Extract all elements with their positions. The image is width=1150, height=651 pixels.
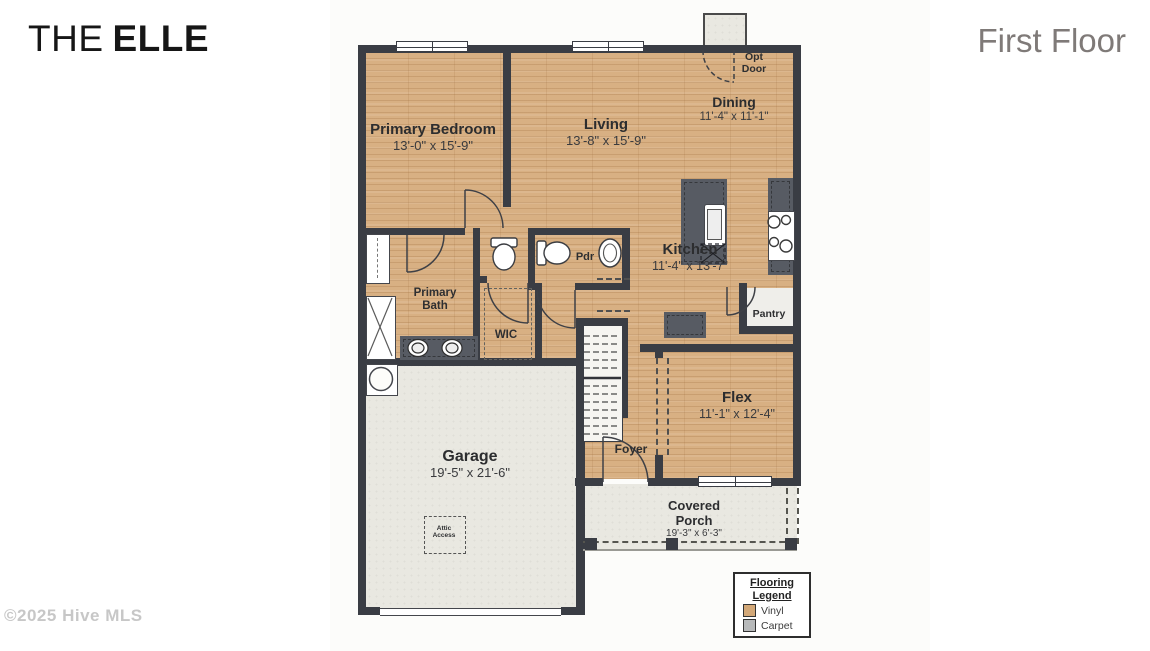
wall-front-c — [770, 478, 801, 486]
label-covered-porch: Covered Porch 19'-3" x 6'-3" — [652, 499, 736, 539]
kitchen-dims: 11'-4" x 13'-7" — [630, 259, 750, 273]
label-pdr: Pdr — [567, 251, 603, 263]
wall-hall-b — [407, 228, 465, 235]
kitchen-name: Kitchen — [630, 242, 750, 259]
plan-title-prefix: THE — [28, 18, 104, 59]
label-foyer: Foyer — [602, 443, 660, 456]
wall-flex-left-top — [655, 344, 663, 358]
porch-right-dashed-edge — [786, 488, 799, 544]
porch-post-left — [585, 538, 597, 550]
water-heater-pad — [366, 364, 398, 396]
wall-pantry-bottom — [739, 326, 801, 334]
kitchen-counter-stub — [664, 312, 706, 338]
label-attic-access: Attic Access — [426, 525, 462, 540]
island-sink-basin — [707, 209, 722, 240]
wic-carpet-outline — [484, 288, 532, 360]
legend-row-carpet: Carpet — [743, 619, 809, 632]
copyright-text: ©2025 Hive MLS — [4, 606, 143, 626]
porch-post-right — [785, 538, 797, 550]
legend-row-vinyl: Vinyl — [743, 604, 809, 617]
porch-bottom-dashed-edge — [583, 541, 795, 543]
label-primary-bath: Primary Bath — [407, 287, 463, 313]
bath-vanity — [400, 336, 478, 360]
label-opt-door: Opt Door — [736, 52, 772, 76]
stove — [768, 211, 795, 261]
dining-dims: 11'-4" x 11'-1" — [674, 111, 794, 124]
flex-window — [698, 476, 772, 487]
wall-niche-left — [473, 228, 480, 273]
garage-name: Garage — [370, 448, 570, 466]
label-primary-bedroom: Primary Bedroom 13'-0" x 15'-9" — [333, 122, 533, 153]
living-name: Living — [536, 117, 676, 134]
shower — [366, 296, 396, 360]
label-flex: Flex 11'-1" x 12'-4" — [677, 390, 797, 421]
floor-label: First Floor — [978, 22, 1127, 60]
vinyl-label: Vinyl — [761, 605, 784, 617]
covered-porch-name: Covered Porch — [659, 499, 729, 528]
wall-kitchen-flex — [640, 344, 801, 352]
garage-dims: 19'-5" x 21'-6" — [370, 466, 570, 481]
flex-name: Flex — [677, 390, 797, 407]
label-garage: Garage 19'-5" x 21'-6" — [370, 448, 570, 480]
flooring-legend-title: Flooring Legend — [741, 577, 803, 602]
wall-wic-top — [473, 276, 487, 283]
primary-bedroom-name: Primary Bedroom — [333, 122, 533, 139]
flex-cased-opening — [656, 358, 669, 455]
wall-front-a — [575, 478, 603, 486]
staircase — [583, 325, 623, 442]
wall-garage-bottom-right — [561, 607, 585, 615]
wall-garage-bottom-left — [358, 607, 380, 615]
flooring-legend: Flooring Legend Vinyl Carpet — [733, 572, 811, 638]
garage-door-line — [380, 608, 561, 616]
label-kitchen: Kitchen 11'-4" x 13'-7" — [630, 242, 750, 273]
bedroom-window — [396, 41, 468, 52]
label-pantry: Pantry — [741, 309, 797, 321]
wall-wic-right — [535, 283, 542, 365]
garage-floor — [366, 362, 577, 609]
label-wic: WIC — [487, 329, 525, 342]
label-dining: Dining 11'-4" x 11'-1" — [674, 95, 794, 124]
linen-closet-rod — [377, 238, 378, 278]
carpet-swatch-icon — [743, 619, 756, 632]
dining-name: Dining — [674, 95, 794, 111]
primary-bedroom-dims: 13'-0" x 15'-9" — [333, 139, 533, 154]
porch-slab-edge — [583, 549, 797, 551]
kitchen-cased-opening — [597, 278, 630, 312]
wall-front-b — [648, 478, 698, 486]
covered-porch-dims: 19'-3" x 6'-3" — [652, 528, 736, 539]
vinyl-swatch-icon — [743, 604, 756, 617]
porch-post-middle — [666, 538, 678, 550]
wall-living-pdr — [530, 228, 630, 235]
linen-closet — [366, 234, 390, 284]
plan-title-name: ELLE — [113, 18, 210, 59]
flex-dims: 11'-1" x 12'-4" — [677, 407, 797, 421]
carpet-label: Carpet — [761, 620, 793, 632]
wall-pdr-left — [528, 228, 535, 290]
plan-title: THEELLE — [28, 18, 209, 60]
floor-plan-page: THEELLE First Floor ©2025 Hive MLS — [0, 0, 1150, 651]
living-window — [572, 41, 644, 52]
living-dims: 13'-8" x 15'-9" — [536, 134, 676, 149]
label-living: Living 13'-8" x 15'-9" — [536, 117, 676, 148]
